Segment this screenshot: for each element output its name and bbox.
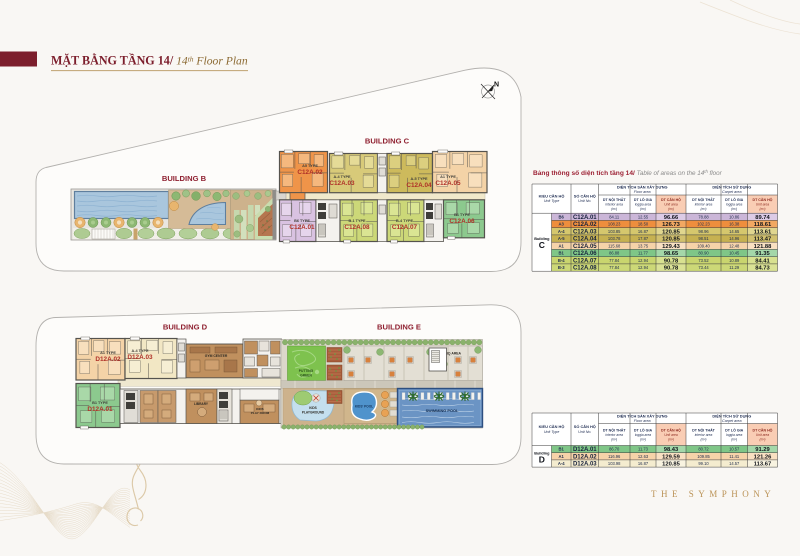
svg-text:102.23: 102.23: [697, 222, 710, 227]
svg-text:A-4 TYPE: A-4 TYPE: [131, 349, 149, 353]
svg-text:126.73: 126.73: [662, 222, 681, 228]
svg-text:BUILDING B: BUILDING B: [162, 174, 207, 183]
svg-text:B6: B6: [559, 214, 565, 219]
svg-text:10.86: 10.86: [729, 214, 740, 219]
svg-text:KIỂU CĂN HỘ: KIỂU CĂN HỘ: [539, 424, 565, 429]
svg-text:A1 TYPE: A1 TYPE: [440, 175, 456, 179]
svg-text:B-3: B-3: [558, 265, 565, 270]
svg-text:LIBRARY: LIBRARY: [194, 402, 209, 406]
svg-text:Carpet area: Carpet area: [722, 419, 741, 423]
svg-text:(m²): (m²): [700, 207, 706, 211]
svg-text:interior area: interior area: [695, 433, 713, 437]
svg-text:90.78: 90.78: [664, 266, 679, 272]
svg-text:SWIMMING POOL: SWIMMING POOL: [426, 408, 459, 413]
svg-text:N: N: [494, 82, 499, 89]
svg-text:11.29: 11.29: [729, 265, 740, 270]
svg-text:16.38: 16.38: [729, 222, 740, 227]
svg-text:C12A.01: C12A.01: [289, 224, 315, 231]
svg-text:80.72: 80.72: [698, 447, 709, 452]
svg-text:11.77: 11.77: [638, 251, 649, 256]
svg-text:12.48: 12.48: [729, 243, 740, 248]
svg-text:(m²): (m²): [640, 437, 646, 441]
svg-text:KIDS: KIDS: [309, 406, 317, 410]
svg-text:C12A.01: C12A.01: [573, 215, 597, 221]
svg-text:(m²): (m²): [640, 207, 646, 211]
svg-text:A1: A1: [559, 243, 565, 248]
svg-text:BUILDING E: BUILDING E: [377, 323, 421, 332]
svg-text:98.43: 98.43: [664, 447, 679, 453]
svg-text:(m²): (m²): [611, 207, 617, 211]
svg-text:Unit No.: Unit No.: [578, 430, 591, 434]
svg-text:90.78: 90.78: [664, 258, 679, 264]
svg-text:Unit area: Unit area: [756, 203, 770, 207]
svg-text:16.87: 16.87: [638, 229, 649, 234]
svg-text:DT CĂN HỘ: DT CĂN HỘ: [661, 428, 681, 433]
svg-text:A5 TYPE: A5 TYPE: [302, 164, 318, 168]
svg-text:84.11: 84.11: [609, 214, 620, 219]
svg-text:18.50: 18.50: [638, 222, 649, 227]
svg-text:(m²): (m²): [759, 207, 765, 211]
svg-text:Unit area: Unit area: [664, 433, 678, 437]
svg-text:B-4 TYPE: B-4 TYPE: [396, 219, 414, 223]
svg-text:13.75: 13.75: [638, 243, 649, 248]
svg-text:129.43: 129.43: [662, 244, 681, 250]
svg-text:interior area: interior area: [605, 203, 623, 207]
svg-text:B6 TYPE: B6 TYPE: [294, 219, 310, 223]
svg-text:14.65: 14.65: [729, 229, 740, 234]
svg-text:loggia area: loggia area: [635, 203, 651, 207]
svg-text:loggia area: loggia area: [726, 203, 742, 207]
svg-text:B-4: B-4: [558, 258, 565, 263]
svg-text:98.51: 98.51: [698, 236, 709, 241]
svg-text:D12A.03: D12A.03: [573, 462, 597, 468]
svg-text:A-5 TYPE: A-5 TYPE: [410, 177, 428, 181]
svg-text:C12A.02: C12A.02: [297, 169, 323, 176]
svg-text:121.26: 121.26: [754, 454, 773, 460]
svg-text:(m²): (m²): [731, 437, 737, 441]
svg-text:(m²): (m²): [668, 437, 674, 441]
svg-text:10.57: 10.57: [729, 447, 740, 452]
svg-text:loggia area: loggia area: [635, 433, 651, 437]
svg-text:C12A.08: C12A.08: [573, 266, 597, 272]
svg-text:A1 TYPE: A1 TYPE: [100, 351, 116, 355]
svg-text:129.59: 129.59: [662, 454, 681, 460]
svg-text:80.90: 80.90: [698, 251, 709, 256]
svg-text:12.63: 12.63: [638, 454, 649, 459]
svg-text:D: D: [539, 454, 545, 464]
svg-text:A1: A1: [559, 454, 565, 459]
svg-text:113.61: 113.61: [754, 229, 772, 235]
svg-text:11.73: 11.73: [638, 447, 649, 452]
svg-text:(m²): (m²): [700, 437, 706, 441]
svg-text:12.94: 12.94: [638, 258, 649, 263]
svg-text:99.10: 99.10: [698, 461, 709, 466]
svg-text:D12A.01: D12A.01: [87, 406, 113, 413]
svg-text:MẶT BẰNG TẦNG 14/ 14th Floor P: MẶT BẰNG TẦNG 14/ 14th Floor Plan: [51, 53, 248, 68]
svg-text:120.85: 120.85: [662, 462, 681, 468]
svg-text:B1: B1: [559, 447, 565, 452]
svg-text:loggia area: loggia area: [726, 433, 742, 437]
svg-text:DT LÔ GIA: DT LÔ GIA: [725, 428, 744, 433]
svg-text:89.74: 89.74: [755, 215, 770, 221]
svg-text:109.85: 109.85: [697, 454, 710, 459]
svg-text:115.68: 115.68: [608, 243, 621, 248]
svg-text:DT NỘI THẤT: DT NỘI THẤT: [692, 197, 716, 202]
svg-text:77.84: 77.84: [609, 258, 620, 263]
svg-text:GYM CENTER: GYM CENTER: [205, 354, 228, 358]
svg-text:B-1 TYPE: B-1 TYPE: [348, 219, 366, 223]
svg-text:A3: A3: [559, 222, 565, 227]
svg-text:DT NỘI THẤT: DT NỘI THẤT: [692, 428, 716, 433]
svg-text:118.61: 118.61: [754, 222, 772, 228]
svg-text:SỐ CĂN HỘ: SỐ CĂN HỘ: [574, 194, 596, 199]
svg-text:C12A.03: C12A.03: [573, 229, 597, 235]
svg-text:73.44: 73.44: [698, 265, 709, 270]
svg-text:113.47: 113.47: [754, 237, 771, 243]
svg-text:86.88: 86.88: [609, 251, 620, 256]
svg-text:interior area: interior area: [695, 203, 713, 207]
svg-text:C12A.07: C12A.07: [392, 224, 418, 231]
svg-text:Unit Type: Unit Type: [544, 430, 560, 434]
svg-text:Bảng thông số diện tích tầng 1: Bảng thông số diện tích tầng 14/ Table o…: [533, 168, 723, 177]
svg-text:113.67: 113.67: [754, 462, 771, 468]
svg-text:KIDS' POOL: KIDS' POOL: [355, 405, 373, 409]
svg-text:THE SYMPHONY: THE SYMPHONY: [651, 489, 775, 499]
svg-text:(m²): (m²): [759, 437, 765, 441]
svg-text:Floor area: Floor area: [634, 190, 651, 194]
svg-text:DIỆN TÍCH SÀN XÂY DỰNG: DIỆN TÍCH SÀN XÂY DỰNG: [617, 414, 668, 419]
svg-text:98.96: 98.96: [698, 229, 709, 234]
svg-text:BUILDING D: BUILDING D: [163, 323, 208, 332]
svg-text:12.55: 12.55: [638, 214, 649, 219]
svg-text:10.89: 10.89: [729, 258, 740, 263]
svg-text:DIỆN TÍCH SÀN XÂY DỰNG: DIỆN TÍCH SÀN XÂY DỰNG: [617, 185, 668, 190]
svg-text:PLAY ROOM: PLAY ROOM: [251, 411, 270, 415]
svg-text:DT NỘI THẤT: DT NỘI THẤT: [603, 197, 627, 202]
svg-text:91.29: 91.29: [755, 447, 770, 453]
svg-text:A-4 TYPE: A-4 TYPE: [333, 175, 351, 179]
svg-text:Unit area: Unit area: [756, 433, 770, 437]
svg-text:(m²): (m²): [611, 437, 617, 441]
svg-text:D12A.01: D12A.01: [573, 447, 597, 453]
svg-text:84.73: 84.73: [755, 266, 770, 272]
svg-text:C12A.06: C12A.06: [449, 218, 475, 225]
svg-text:14.57: 14.57: [729, 461, 740, 466]
svg-text:16.87: 16.87: [638, 461, 649, 466]
svg-text:116.96: 116.96: [608, 454, 621, 459]
svg-text:121.88: 121.88: [754, 244, 773, 250]
svg-text:A-4: A-4: [558, 461, 565, 466]
svg-text:B1: B1: [559, 251, 565, 256]
svg-text:Floor area: Floor area: [634, 419, 651, 423]
svg-text:96.66: 96.66: [664, 215, 679, 221]
svg-text:109.40: 109.40: [697, 243, 710, 248]
svg-text:DT CĂN HỘ: DT CĂN HỘ: [753, 428, 773, 433]
svg-text:DT LÔ GIA: DT LÔ GIA: [634, 428, 653, 433]
svg-text:DIỆN TÍCH SỬ DỤNG: DIỆN TÍCH SỬ DỤNG: [712, 185, 751, 190]
svg-text:C12A.04: C12A.04: [573, 237, 597, 243]
svg-text:120.85: 120.85: [662, 229, 681, 235]
svg-text:103.85: 103.85: [608, 229, 621, 234]
svg-text:C12A.05: C12A.05: [435, 180, 461, 187]
svg-text:10.45: 10.45: [729, 251, 740, 256]
svg-text:GREEN: GREEN: [300, 373, 312, 377]
svg-text:12.94: 12.94: [638, 265, 649, 270]
svg-text:BUILDING C: BUILDING C: [365, 137, 410, 146]
svg-text:Carpet area: Carpet area: [722, 190, 741, 194]
svg-text:KIỂU CĂN HỘ: KIỂU CĂN HỘ: [539, 194, 565, 199]
svg-text:DT NỘI THẤT: DT NỘI THẤT: [603, 428, 627, 433]
svg-text:C12A.04: C12A.04: [406, 182, 432, 189]
svg-text:C12A.08: C12A.08: [344, 224, 370, 231]
svg-text:D12A.03: D12A.03: [127, 354, 153, 361]
svg-text:A-5: A-5: [558, 236, 565, 241]
svg-text:78.88: 78.88: [698, 214, 709, 219]
svg-text:B1 TYPE: B1 TYPE: [92, 401, 108, 405]
svg-text:11.41: 11.41: [729, 454, 740, 459]
svg-text:86.70: 86.70: [609, 447, 620, 452]
svg-text:Unit Type: Unit Type: [544, 199, 560, 203]
svg-text:77.84: 77.84: [609, 265, 620, 270]
svg-text:120.85: 120.85: [662, 237, 681, 243]
svg-text:C12A.02: C12A.02: [573, 222, 597, 228]
svg-text:91.35: 91.35: [755, 251, 770, 257]
svg-text:17.87: 17.87: [638, 236, 649, 241]
svg-text:DT LÔ GIA: DT LÔ GIA: [725, 197, 744, 202]
svg-text:PUTTING: PUTTING: [299, 369, 314, 373]
svg-text:A-4: A-4: [558, 229, 565, 234]
svg-text:B1 TYPE: B1 TYPE: [454, 213, 470, 217]
svg-text:C: C: [539, 240, 545, 250]
svg-text:C12A.06: C12A.06: [573, 251, 597, 257]
svg-text:interior area: interior area: [605, 433, 623, 437]
svg-text:C12A.07: C12A.07: [573, 258, 597, 264]
svg-text:14.96: 14.96: [729, 236, 740, 241]
svg-text:98.65: 98.65: [664, 251, 679, 257]
svg-text:(m²): (m²): [731, 207, 737, 211]
svg-text:DT CĂN HỘ: DT CĂN HỘ: [753, 197, 773, 202]
svg-text:PLAYGROUND: PLAYGROUND: [302, 410, 325, 414]
svg-text:73.52: 73.52: [698, 258, 709, 263]
svg-text:DT CĂN HỘ: DT CĂN HỘ: [661, 197, 681, 202]
svg-text:(m²): (m²): [668, 207, 674, 211]
svg-text:SỐ CĂN HỘ: SỐ CĂN HỘ: [574, 424, 596, 429]
svg-text:Unit area: Unit area: [664, 203, 678, 207]
svg-text:84.41: 84.41: [755, 258, 770, 264]
svg-text:C12A.05: C12A.05: [573, 244, 597, 250]
svg-text:Unit No.: Unit No.: [578, 199, 591, 203]
svg-text:DIỆN TÍCH SỬ DỤNG: DIỆN TÍCH SỬ DỤNG: [712, 414, 751, 419]
svg-text:C12A.03: C12A.03: [329, 180, 355, 187]
svg-text:103.98: 103.98: [608, 461, 621, 466]
svg-text:DT LÔ GIA: DT LÔ GIA: [634, 197, 653, 202]
svg-text:103.78: 103.78: [608, 236, 621, 241]
svg-text:108.23: 108.23: [608, 222, 621, 227]
svg-text:D12A.02: D12A.02: [573, 454, 597, 460]
svg-text:D12A.02: D12A.02: [95, 356, 121, 363]
